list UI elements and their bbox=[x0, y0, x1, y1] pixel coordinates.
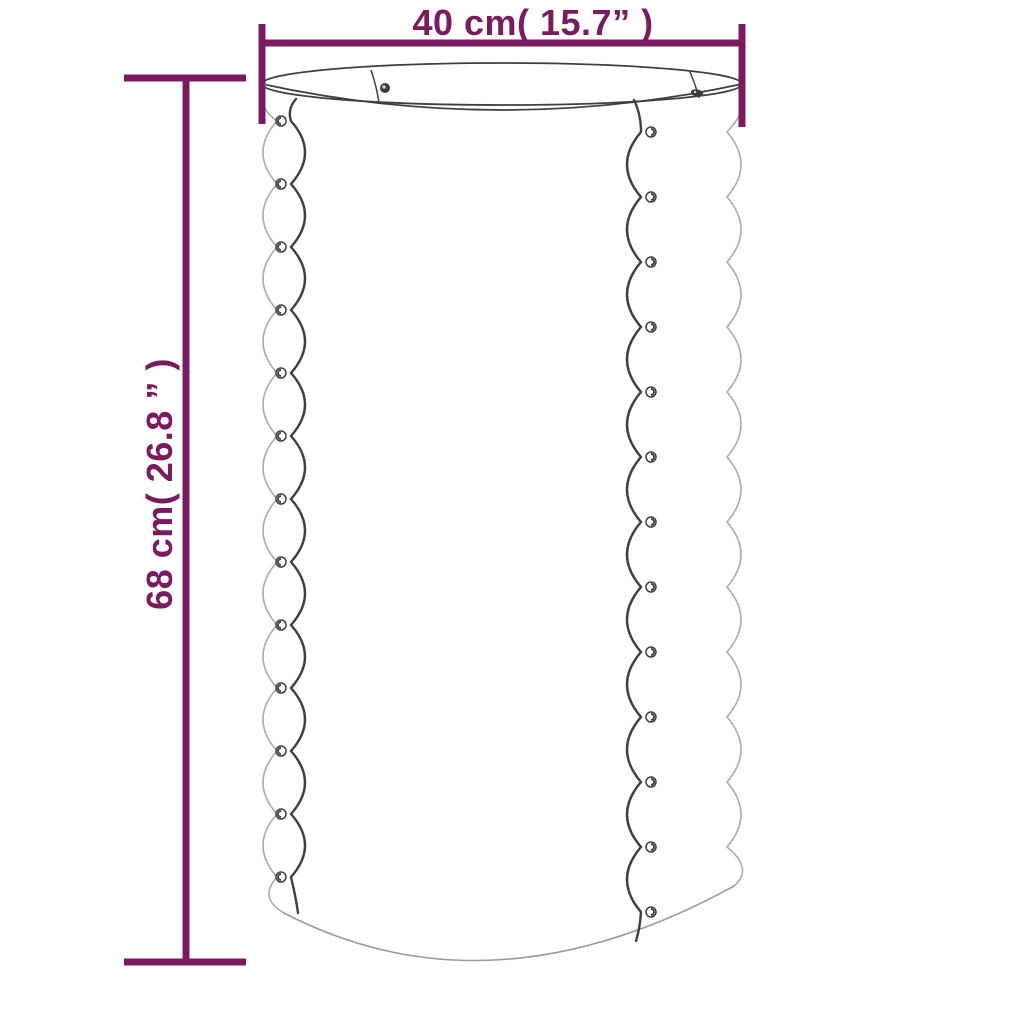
rivet-icon bbox=[646, 322, 656, 332]
height-dimension: 68 cm( 26.8 ” ) bbox=[124, 78, 246, 962]
rivet-icon bbox=[276, 683, 286, 693]
planter-drawing bbox=[262, 63, 744, 961]
rivet-icon bbox=[646, 517, 656, 527]
rivet-icon bbox=[276, 494, 286, 504]
rivet-icon bbox=[646, 127, 656, 137]
diagram-canvas: 40 cm( 15.7” ) 68 cm( 26.8 ” ) bbox=[0, 0, 1024, 1024]
rivet-icon bbox=[276, 872, 286, 882]
rivet-icon bbox=[646, 452, 656, 462]
rivet-icon bbox=[646, 777, 656, 787]
rivet-icon bbox=[276, 746, 286, 756]
rivet-icon bbox=[646, 257, 656, 267]
rivet-icon bbox=[646, 712, 656, 722]
rivet-icon bbox=[276, 305, 286, 315]
rivet-icon bbox=[276, 179, 286, 189]
planter-rim bbox=[262, 63, 742, 105]
rivet-icon bbox=[646, 582, 656, 592]
left-seam-rivets bbox=[276, 116, 286, 882]
rivet-icon bbox=[276, 116, 286, 126]
rivet-icon bbox=[276, 368, 286, 378]
rivet-icon bbox=[276, 557, 286, 567]
right-seam-rivets bbox=[646, 127, 656, 917]
planter-right-edge bbox=[727, 84, 743, 886]
planter-left-seam bbox=[290, 99, 305, 913]
planter-dimension-diagram: 40 cm( 15.7” ) 68 cm( 26.8 ” ) bbox=[0, 0, 1024, 1024]
height-dimension-label: 68 cm( 26.8 ” ) bbox=[139, 358, 180, 610]
rivet-icon bbox=[276, 431, 286, 441]
rivet-icon bbox=[646, 387, 656, 397]
rivet-icon bbox=[646, 192, 656, 202]
rivet-icon bbox=[276, 620, 286, 630]
rim-rivet-left-icon bbox=[380, 83, 390, 93]
rivet-icon bbox=[646, 907, 656, 917]
planter-bottom-edge bbox=[284, 886, 734, 961]
rivet-icon bbox=[276, 242, 286, 252]
planter-right-seam bbox=[627, 100, 641, 941]
rivet-icon bbox=[646, 647, 656, 657]
rivet-icon bbox=[646, 842, 656, 852]
rivet-icon bbox=[276, 809, 286, 819]
width-dimension-label: 40 cm( 15.7” ) bbox=[412, 2, 653, 43]
